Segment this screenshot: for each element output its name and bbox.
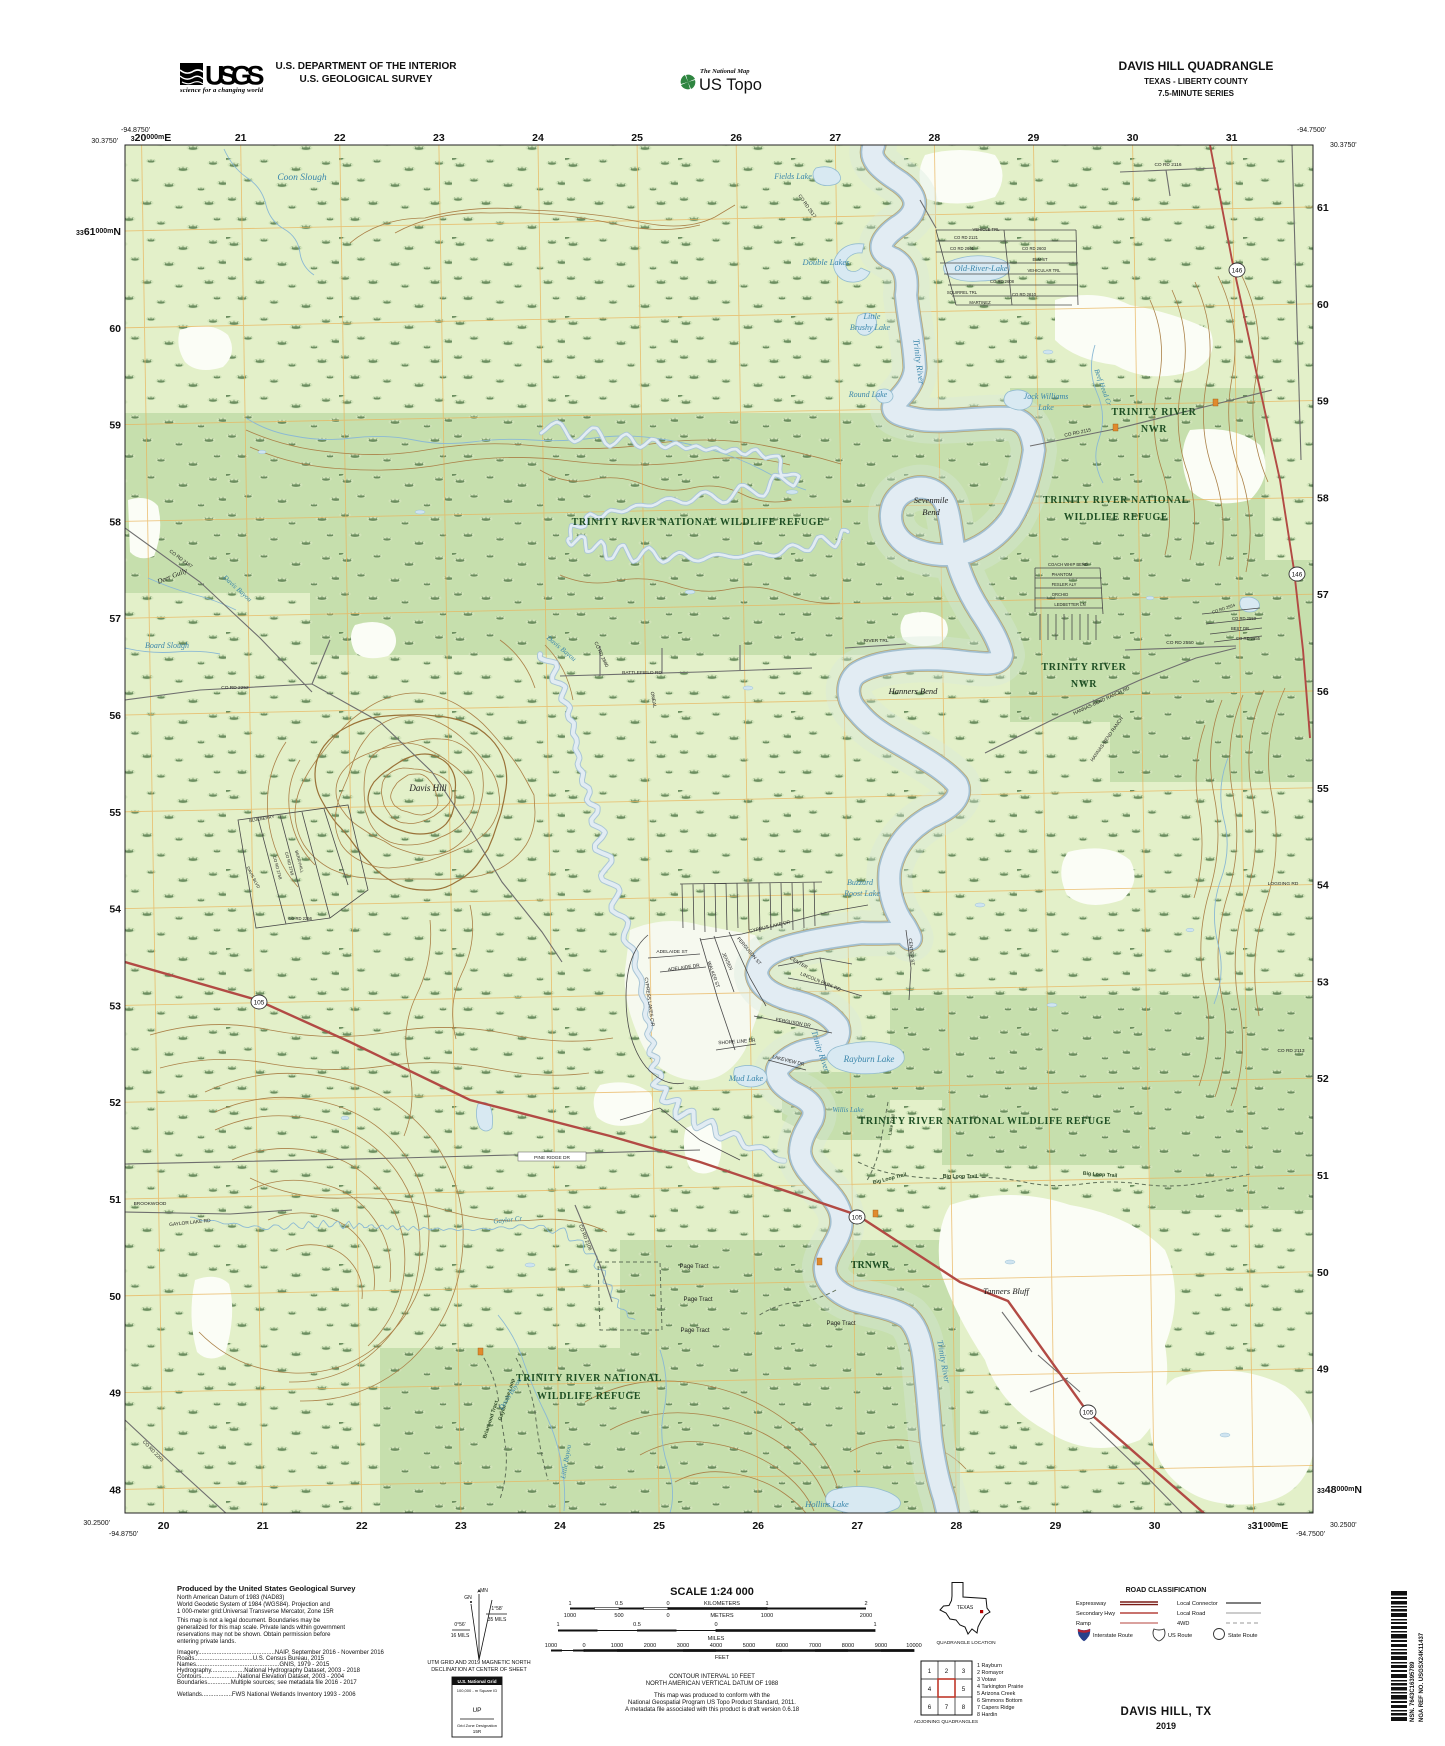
svg-text:4: 4 [928, 1686, 932, 1693]
svg-text:Lake: Lake [1037, 403, 1054, 412]
svg-text:U.S. GEOLOGICAL SURVEY: U.S. GEOLOGICAL SURVEY [300, 74, 433, 85]
svg-text:MARTINEZ: MARTINEZ [969, 300, 991, 305]
svg-text:MILES: MILES [708, 1636, 725, 1642]
svg-text:2: 2 [945, 1668, 949, 1675]
svg-text:8000: 8000 [842, 1643, 854, 1649]
svg-text:57: 57 [109, 613, 121, 625]
svg-text:Big Loop Trail: Big Loop Trail [943, 1174, 978, 1180]
svg-text:ORCHID: ORCHID [1052, 592, 1069, 597]
svg-text:GN: GN [464, 1595, 472, 1601]
svg-text:54: 54 [1317, 880, 1329, 892]
svg-text:54: 54 [109, 904, 121, 916]
svg-text:Rayburn Lake: Rayburn Lake [843, 1054, 895, 1064]
svg-text:331000mE: 331000mE [1248, 1520, 1289, 1532]
svg-text:NGA REF NO. USGSX24K11437: NGA REF NO. USGSX24K11437 [1419, 1632, 1425, 1722]
svg-text:7 Capers Ridge: 7 Capers Ridge [977, 1705, 1014, 1711]
svg-text:Hanners Bend: Hanners Bend [888, 686, 939, 696]
svg-text:KILOMETERS: KILOMETERS [704, 1601, 740, 1607]
svg-text:Mud Lake: Mud Lake [728, 1073, 763, 1083]
svg-text:59: 59 [109, 420, 121, 432]
svg-text:2019: 2019 [1156, 1721, 1176, 1731]
svg-text:generalized for this map scale: generalized for this map scale. Private … [177, 1625, 345, 1631]
svg-text:61: 61 [1317, 202, 1329, 214]
svg-text:ADJOINING QUADRANGLES: ADJOINING QUADRANGLES [914, 1719, 978, 1725]
svg-text:105: 105 [852, 1215, 863, 1222]
svg-text:29: 29 [1050, 1520, 1062, 1532]
svg-text:Round Lake: Round Lake [848, 390, 888, 399]
svg-text:1 Rayburn: 1 Rayburn [977, 1663, 1002, 1669]
svg-text:1000: 1000 [761, 1613, 773, 1619]
svg-text:26: 26 [752, 1520, 764, 1532]
svg-text:1: 1 [873, 1622, 876, 1628]
svg-text:26: 26 [730, 132, 742, 144]
svg-text:58: 58 [1317, 492, 1329, 504]
svg-text:NWR: NWR [1071, 679, 1097, 690]
svg-text:DAVIS HILL QUADRANGLE: DAVIS HILL QUADRANGLE [1119, 59, 1274, 73]
svg-text:Expressway: Expressway [1076, 1601, 1106, 1607]
svg-text:2000: 2000 [644, 1643, 656, 1649]
svg-text:25: 25 [631, 132, 643, 144]
svg-text:56: 56 [109, 710, 121, 722]
svg-text:This map was produced to confo: This map was produced to conform with th… [654, 1693, 771, 1699]
svg-text:Old-River-Lake: Old-River-Lake [954, 263, 1007, 273]
svg-text:8: 8 [962, 1704, 966, 1711]
svg-text:UP: UP [472, 1707, 481, 1714]
svg-text:PINE RIDGE DR: PINE RIDGE DR [534, 1155, 571, 1161]
svg-text:0: 0 [714, 1622, 717, 1628]
svg-text:5000: 5000 [743, 1643, 755, 1649]
svg-text:CO RD 2256: CO RD 2256 [288, 916, 313, 921]
svg-text:Tanners Bluff: Tanners Bluff [983, 1286, 1030, 1296]
svg-text:60: 60 [109, 323, 121, 335]
svg-text:51: 51 [109, 1194, 121, 1206]
svg-text:TRINITY RIVER NATIONAL: TRINITY RIVER NATIONAL [1043, 495, 1189, 506]
svg-text:1: 1 [765, 1601, 768, 1607]
svg-text:Grid Zone Designation: Grid Zone Designation [457, 1723, 497, 1728]
svg-text:22: 22 [356, 1520, 368, 1532]
svg-text:LEDBETTER LN: LEDBETTER LN [1054, 602, 1085, 607]
svg-text:2: 2 [864, 1601, 867, 1607]
svg-text:56: 56 [1317, 686, 1329, 698]
svg-text:Buzzard: Buzzard [847, 878, 874, 887]
svg-text:CO RD 2116: CO RD 2116 [1154, 162, 1181, 168]
svg-text:BROOKWOOD: BROOKWOOD [134, 1201, 167, 1207]
svg-text:TRINITY RIVER: TRINITY RIVER [1042, 662, 1127, 673]
svg-text:3361000mN: 3361000mN [76, 226, 121, 238]
svg-text:U.S. National Grid: U.S. National Grid [457, 1679, 496, 1684]
svg-text:World Geodetic System of 1984: World Geodetic System of 1984 (WGS84). P… [177, 1602, 330, 1608]
svg-text:5: 5 [962, 1686, 966, 1693]
svg-text:5 Arizona Creek: 5 Arizona Creek [977, 1691, 1016, 1697]
svg-text:500: 500 [614, 1613, 623, 1619]
svg-text:30.2500': 30.2500' [83, 1520, 110, 1527]
svg-text:NSN. 7643C16395789: NSN. 7643C16395789 [1410, 1661, 1416, 1722]
svg-text:Coon Slough: Coon Slough [277, 173, 327, 183]
svg-text:-94.7500': -94.7500' [1296, 1531, 1325, 1538]
svg-text:Secondary Hwy: Secondary Hwy [1076, 1611, 1115, 1617]
svg-text:The National Map: The National Map [700, 68, 750, 75]
svg-text:0.5: 0.5 [633, 1622, 641, 1628]
svg-text:FEET: FEET [715, 1655, 730, 1661]
svg-text:7000: 7000 [809, 1643, 821, 1649]
svg-text:9000: 9000 [875, 1643, 887, 1649]
svg-text:24: 24 [532, 132, 544, 144]
svg-text:UTM GRID AND 2019 MAGNETIC NOR: UTM GRID AND 2019 MAGNETIC NORTH [427, 1660, 530, 1666]
svg-text:6000: 6000 [776, 1643, 788, 1649]
svg-text:TEXAS: TEXAS [957, 1605, 974, 1611]
svg-text:35 MILS: 35 MILS [488, 1617, 507, 1623]
svg-text:23: 23 [433, 132, 445, 144]
svg-text:3000: 3000 [677, 1643, 689, 1649]
svg-text:CO RD 2113: CO RD 2113 [1277, 1048, 1304, 1054]
svg-text:52: 52 [1317, 1073, 1329, 1085]
svg-text:A metadata file associated wit: A metadata file associated with this pro… [625, 1707, 800, 1713]
svg-text:55: 55 [1317, 783, 1329, 795]
svg-text:DECLINATION AT CENTER OF SHEET: DECLINATION AT CENTER OF SHEET [431, 1667, 527, 1673]
svg-text:RIVER TRL: RIVER TRL [864, 638, 889, 644]
svg-text:Board Slough: Board Slough [145, 641, 189, 650]
svg-text:Brushy Lake: Brushy Lake [850, 323, 891, 332]
svg-text:58: 58 [109, 516, 121, 528]
svg-text:21: 21 [235, 132, 247, 144]
svg-text:VEHICLE TRL: VEHICLE TRL [973, 227, 1001, 232]
svg-text:ELM ST: ELM ST [1032, 257, 1048, 262]
svg-text:1: 1 [568, 1601, 571, 1607]
svg-text:31: 31 [1226, 132, 1238, 144]
svg-text:49: 49 [109, 1388, 121, 1400]
svg-text:27: 27 [829, 132, 841, 144]
svg-text:146: 146 [1232, 268, 1243, 275]
svg-text:TRINITY RIVER NATIONAL WILDLIF: TRINITY RIVER NATIONAL WILDLIFE REFUGE [859, 1116, 1112, 1127]
svg-text:10000: 10000 [906, 1643, 922, 1649]
svg-text:Page Tract: Page Tract [679, 1264, 708, 1270]
svg-text:30.3750': 30.3750' [91, 138, 118, 145]
svg-text:CO RD 2603: CO RD 2603 [1022, 246, 1047, 251]
svg-text:-94.8750': -94.8750' [121, 127, 150, 134]
svg-text:21: 21 [257, 1520, 269, 1532]
svg-text:22: 22 [334, 132, 346, 144]
svg-text:30: 30 [1127, 132, 1139, 144]
svg-text:PHANTOM: PHANTOM [1052, 572, 1073, 577]
svg-text:Interstate Route: Interstate Route [1093, 1633, 1133, 1639]
svg-text:CO RD 2608: CO RD 2608 [990, 279, 1015, 284]
svg-text:TRINITY RIVER NATIONAL: TRINITY RIVER NATIONAL [516, 1373, 662, 1384]
svg-text:51: 51 [1317, 1170, 1329, 1182]
svg-text:Willis Lake: Willis Lake [832, 1106, 863, 1114]
svg-text:0: 0 [666, 1601, 669, 1607]
svg-text:USGS: USGS [205, 61, 263, 91]
svg-text:This map is not a legal docume: This map is not a legal document. Bounda… [177, 1618, 321, 1624]
svg-text:Boundaries..............Multip: Boundaries..............Multiple sources… [177, 1680, 357, 1686]
svg-text:100,000 - m Square ID: 100,000 - m Square ID [457, 1688, 498, 1693]
svg-text:0.5: 0.5 [615, 1601, 623, 1607]
svg-text:30.3750': 30.3750' [1330, 142, 1357, 149]
svg-text:23: 23 [455, 1520, 467, 1532]
svg-text:Wetlands..................FWS: Wetlands..................FWS National W… [177, 1692, 356, 1698]
svg-text:105: 105 [1083, 1410, 1094, 1417]
svg-text:60: 60 [1317, 299, 1329, 311]
svg-text:7: 7 [945, 1704, 949, 1711]
svg-text:0: 0 [582, 1643, 585, 1649]
svg-text:ROAD CLASSIFICATION: ROAD CLASSIFICATION [1126, 1587, 1207, 1594]
svg-text:30: 30 [1149, 1520, 1161, 1532]
svg-text:50: 50 [109, 1291, 121, 1303]
svg-text:Roost Lake: Roost Lake [843, 889, 880, 898]
svg-text:28: 28 [929, 132, 941, 144]
svg-text:7.5-MINUTE SERIES: 7.5-MINUTE SERIES [1158, 89, 1235, 98]
svg-text:Page Tract: Page Tract [826, 1321, 855, 1327]
svg-text:105: 105 [254, 1000, 265, 1007]
svg-text:1 000-meter grid:Universal Tra: 1 000-meter grid:Universal Transverse Me… [177, 1609, 334, 1615]
svg-text:DAVIS HILL, TX: DAVIS HILL, TX [1120, 1706, 1211, 1718]
svg-text:59: 59 [1317, 396, 1329, 408]
svg-text:Local Connector: Local Connector [1177, 1601, 1218, 1607]
svg-text:LOGGING RD: LOGGING RD [1268, 881, 1299, 887]
svg-text:SQUIRREL TRL: SQUIRREL TRL [947, 290, 978, 295]
svg-text:entering private lands.: entering private lands. [177, 1639, 236, 1645]
svg-text:reservations may not be shown.: reservations may not be shown. Obtain pe… [177, 1632, 331, 1638]
svg-text:CO RD 2610: CO RD 2610 [1012, 292, 1037, 297]
svg-text:8 Hardin: 8 Hardin [977, 1712, 997, 1718]
svg-text:WILDLIFE REFUGE: WILDLIFE REFUGE [1064, 512, 1168, 523]
svg-text:CO RD 2550: CO RD 2550 [1166, 640, 1194, 646]
svg-text:CO RD 2555: CO RD 2555 [1236, 636, 1261, 641]
svg-text:TEXAS - LIBERTY COUNTY: TEXAS - LIBERTY COUNTY [1144, 77, 1249, 86]
svg-text:0: 0 [666, 1613, 669, 1619]
svg-text:VEHICULAR TRL: VEHICULAR TRL [1028, 268, 1062, 273]
svg-text:BEST DR: BEST DR [1231, 626, 1249, 631]
svg-text:16 MILS: 16 MILS [451, 1633, 470, 1639]
svg-text:Local Road: Local Road [1177, 1611, 1205, 1617]
svg-text:Double Lakes: Double Lakes [802, 257, 851, 267]
svg-text:0°56': 0°56' [454, 1622, 465, 1628]
svg-text:1000: 1000 [564, 1613, 576, 1619]
svg-text:30.2500': 30.2500' [1330, 1522, 1357, 1529]
svg-text:North American Datum of 1983 (: North American Datum of 1983 (NAD83) [177, 1595, 284, 1601]
svg-text:2000: 2000 [860, 1613, 872, 1619]
svg-text:TRINITY RIVER NATIONAL WILDLIF: TRINITY RIVER NATIONAL WILDLIFE REFUGE [572, 517, 825, 528]
svg-text:US Topo: US Topo [699, 76, 762, 94]
svg-text:25: 25 [653, 1520, 665, 1532]
svg-text:57: 57 [1317, 589, 1329, 601]
svg-text:-94.7500': -94.7500' [1297, 127, 1326, 134]
svg-text:29: 29 [1028, 132, 1040, 144]
svg-text:CO RD 2601: CO RD 2601 [950, 246, 975, 251]
svg-text:Little: Little [863, 312, 881, 321]
svg-text:Page Tract: Page Tract [680, 1328, 709, 1334]
svg-text:NWR: NWR [1141, 424, 1167, 435]
svg-text:48: 48 [109, 1484, 121, 1496]
svg-text:METERS: METERS [710, 1613, 734, 1619]
svg-text:NORTH AMERICAN VERTICAL DATUM: NORTH AMERICAN VERTICAL DATUM OF 1988 [646, 1681, 779, 1687]
svg-text:Sevenmile: Sevenmile [914, 495, 949, 505]
svg-text:ADELAIDE ST: ADELAIDE ST [656, 949, 687, 955]
svg-text:4WD: 4WD [1177, 1621, 1189, 1627]
svg-text:49: 49 [1317, 1364, 1329, 1376]
svg-text:State Route: State Route [1228, 1633, 1258, 1639]
svg-text:U.S. DEPARTMENT OF THE INTERIO: U.S. DEPARTMENT OF THE INTERIOR [276, 61, 458, 72]
svg-text:MN: MN [480, 1588, 488, 1594]
svg-text:146: 146 [1292, 572, 1303, 579]
svg-text:TRINITY RIVER: TRINITY RIVER [1112, 407, 1197, 418]
svg-text:QUADRANGLE LOCATION: QUADRANGLE LOCATION [936, 1640, 996, 1646]
svg-text:science for a changing world: science for a changing world [179, 87, 264, 94]
svg-text:Produced by the United States: Produced by the United States Geological… [177, 1584, 356, 1593]
svg-text:Fields Lake: Fields Lake [773, 172, 812, 181]
svg-text:2 Romayor: 2 Romayor [977, 1670, 1004, 1676]
svg-text:4 Tarkington Prairie: 4 Tarkington Prairie [977, 1684, 1023, 1690]
svg-text:BATTLEFIELD RD: BATTLEFIELD RD [622, 670, 662, 676]
svg-text:1: 1 [928, 1668, 932, 1675]
svg-text:-94.8750': -94.8750' [109, 1531, 138, 1538]
svg-text:15R: 15R [473, 1729, 482, 1734]
svg-text:1000: 1000 [611, 1643, 623, 1649]
svg-text:National Geospatial Program US: National Geospatial Program US Topo Prod… [628, 1700, 796, 1706]
svg-text:3 Votaw: 3 Votaw [977, 1677, 996, 1683]
svg-text:53: 53 [1317, 976, 1329, 988]
svg-text:24: 24 [554, 1520, 566, 1532]
svg-text:55: 55 [109, 807, 121, 819]
svg-text:Davis Hill: Davis Hill [408, 783, 447, 793]
svg-text:27: 27 [851, 1520, 863, 1532]
svg-text:3348000mN: 3348000mN [1317, 1484, 1362, 1496]
svg-text:Bend: Bend [922, 507, 940, 517]
svg-text:4000: 4000 [710, 1643, 722, 1649]
svg-text:COACH WHIP BEND: COACH WHIP BEND [1048, 562, 1088, 567]
svg-text:28: 28 [951, 1520, 963, 1532]
svg-text:CONTOUR INTERVAL 10 FEET: CONTOUR INTERVAL 10 FEET [669, 1674, 755, 1680]
svg-text:WILDLIFE REFUGE: WILDLIFE REFUGE [537, 1391, 641, 1402]
svg-text:Page Tract: Page Tract [683, 1297, 712, 1303]
svg-text:52: 52 [109, 1097, 121, 1109]
svg-text:CO RD 2121: CO RD 2121 [954, 235, 979, 240]
svg-text:FESLER ALY: FESLER ALY [1052, 582, 1077, 587]
svg-text:20: 20 [158, 1520, 170, 1532]
svg-text:SCALE 1:24 000: SCALE 1:24 000 [670, 1586, 754, 1598]
svg-text:TRNWR: TRNWR [851, 1260, 890, 1271]
svg-text:CO RD 2252: CO RD 2252 [221, 685, 249, 691]
svg-text:6 Simmons Bottom: 6 Simmons Bottom [977, 1698, 1023, 1704]
svg-text:Hollins Lake: Hollins Lake [804, 1499, 849, 1509]
svg-text:6: 6 [928, 1704, 932, 1711]
svg-text:50: 50 [1317, 1267, 1329, 1279]
svg-text:US Route: US Route [1168, 1633, 1192, 1639]
svg-text:Ramp: Ramp [1076, 1621, 1091, 1627]
svg-text:53: 53 [109, 1000, 121, 1012]
svg-text:3: 3 [962, 1668, 966, 1675]
svg-text:1: 1 [556, 1622, 559, 1628]
svg-text:CO RD 2553: CO RD 2553 [1232, 616, 1257, 621]
svg-text:Jack Williams: Jack Williams [1024, 392, 1069, 401]
svg-text:1°58': 1°58' [491, 1606, 502, 1612]
svg-text:1000: 1000 [545, 1643, 557, 1649]
